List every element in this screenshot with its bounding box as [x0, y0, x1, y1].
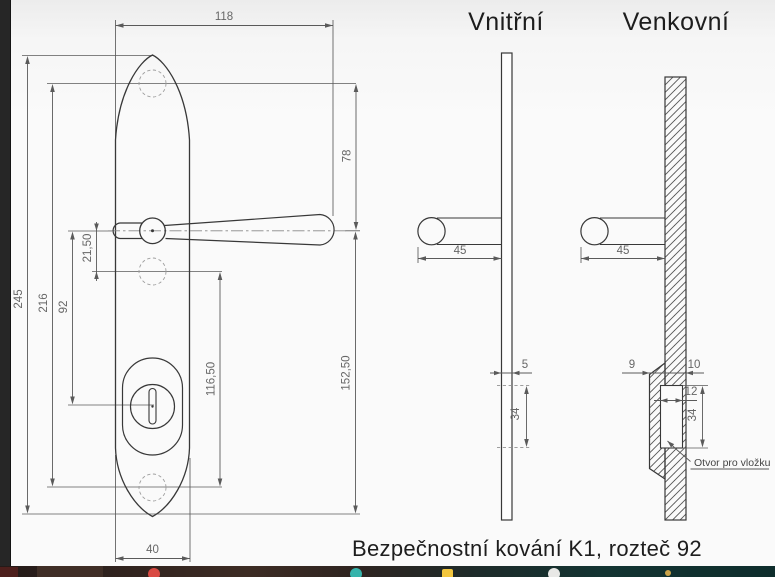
leader-label: Otvor pro vložku [694, 457, 771, 469]
inner-dim-5-label: 5 [522, 359, 528, 371]
inner-side-view: Vnitřní 45 5 34 [418, 8, 544, 520]
taskbar-red-block [0, 567, 18, 577]
inner-plate-profile [502, 53, 513, 520]
teal-app-icon[interactable] [350, 568, 362, 577]
front-view: 118 245 216 92 21,50 116,50 78 152,50 40 [13, 11, 360, 562]
inner-view-title: Vnitřní [468, 8, 544, 36]
dim-height-total-label: 245 [13, 289, 25, 308]
taskbar[interactable] [0, 566, 775, 577]
outer-dim-9-label: 9 [629, 359, 635, 371]
outer-handle-neck [600, 218, 665, 245]
dim-width-total-label: 118 [215, 11, 233, 23]
outer-dim-10-label: 10 [688, 359, 701, 371]
dim-screw-to-screw-label: 116,50 [206, 362, 218, 396]
inner-dim-34-label: 34 [510, 407, 522, 420]
red-app-icon[interactable] [148, 568, 160, 577]
cylinder-hole [661, 386, 683, 449]
dim-screw-span-label: 216 [38, 293, 50, 312]
outer-handle-end [581, 218, 608, 245]
inner-dim-45-label: 45 [454, 245, 467, 257]
white-app-icon[interactable] [548, 568, 560, 577]
dim-handle-to-bottom-label: 152,50 [341, 355, 353, 390]
yellow-app-icon[interactable] [442, 569, 453, 577]
escutcheon [123, 358, 183, 455]
inner-handle-neck [437, 218, 502, 245]
outer-dim-45-label: 45 [617, 245, 630, 257]
screw-hole-bottom [139, 474, 166, 501]
outer-dim-12-label: 12 [685, 386, 698, 398]
dim-handle-to-screw-label: 21,50 [82, 234, 94, 263]
taskbar-active-button[interactable] [37, 566, 103, 577]
technical-drawing: 118 245 216 92 21,50 116,50 78 152,50 40 [0, 0, 775, 577]
plate-outline [116, 55, 190, 517]
dim-plate-width-label: 40 [146, 544, 159, 556]
outer-view-title: Venkovní [623, 8, 730, 36]
outer-side-view: Venkovní 45 9 10 12 34 Otvor pro vložku [581, 8, 771, 520]
screw-holes [139, 70, 166, 501]
handle-hub-center [151, 229, 154, 232]
handle-front [108, 215, 346, 246]
drawing-caption: Bezpečnostní kování K1, rozteč 92 [352, 536, 702, 561]
dimension-lines [28, 26, 357, 559]
window-edge-bar [0, 0, 11, 577]
outer-dim-34-label: 34 [687, 408, 699, 421]
dim-top-to-handle-label: 78 [342, 150, 354, 163]
outer-plate-section [665, 77, 686, 520]
dimension-arrows [25, 23, 358, 561]
inner-handle-end [418, 218, 445, 245]
dim-handle-to-cylinder-label: 92 [58, 301, 70, 314]
keyhole-center [151, 405, 153, 407]
gold-dot-icon[interactable] [665, 570, 671, 576]
